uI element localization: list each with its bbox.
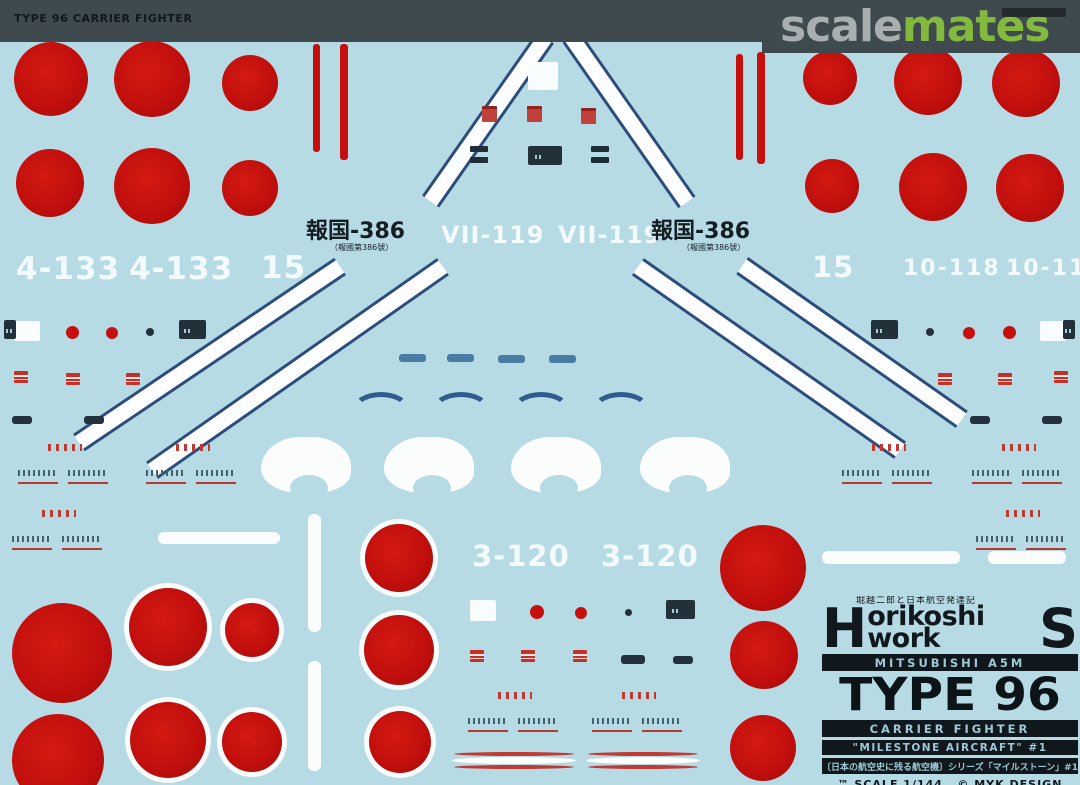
red-stripe-decal (757, 52, 765, 164)
tiny-red-marks (872, 444, 906, 451)
stencil-bar (591, 146, 609, 152)
white-block-decal (528, 62, 558, 90)
tail-code-label: 10-118 (1006, 256, 1080, 281)
stencil-pair-decal (591, 146, 609, 166)
stencil-pair-decal (470, 146, 488, 166)
hokoku-marking: 報国-386 (651, 213, 750, 245)
red-line (454, 765, 574, 769)
hokoku-marking-sub: （報國第386號） (330, 242, 393, 253)
dark-dot-decal (146, 328, 154, 336)
red-square-decal (527, 106, 542, 122)
logo-text-scale: scale (780, 1, 902, 52)
tail-code-label: 3-120 (472, 539, 570, 573)
striped-patch-decal (573, 650, 587, 662)
tiny-red-marks (48, 444, 82, 451)
red-line (454, 752, 574, 756)
subtitle-milestone-aircraft: "MILESTONE AIRCRAFT" #1 (822, 740, 1078, 755)
tiny-red-marks (1006, 510, 1040, 517)
stencil-bar-decal (621, 655, 645, 664)
subtitle-series-jp: 〔日本の航空史に残る航空機〕シリーズ「マイルストーン」#1 (822, 758, 1078, 774)
dashed-walkline-decal (447, 354, 474, 362)
tail-code-label: 4-133 (16, 251, 120, 287)
cowl-arc-decal (592, 392, 650, 428)
stencil-text-cluster (146, 444, 238, 486)
hinomaru-roundel (803, 51, 857, 105)
striped-patch-decal (521, 650, 535, 662)
stencil-underline-group (1022, 468, 1062, 484)
stencil-bar-decal (12, 416, 32, 424)
dashed-walkline-decal (399, 354, 426, 362)
stencil-underline-group (892, 468, 932, 484)
hinomaru-roundel (730, 621, 798, 689)
stencil-text-cluster (592, 692, 684, 734)
red-dot-decal (66, 326, 79, 339)
image-title: TYPE 96 CARRIER FIGHTER (14, 12, 193, 25)
hinomaru-roundel (730, 715, 796, 781)
spat-notch (540, 475, 578, 501)
hinomaru-roundel (899, 153, 967, 221)
hinomaru-roundel (114, 41, 190, 117)
white-strip-decal (308, 661, 321, 771)
stencil-bar-decal (673, 656, 693, 664)
dark-dot-decal (926, 328, 934, 336)
stencil-block-decal (871, 320, 898, 339)
cowl-arc-decal (512, 392, 570, 428)
tail-code-label: 15 (812, 250, 854, 284)
hinomaru-roundel (12, 714, 104, 785)
striped-patch-decal (66, 373, 80, 385)
curved-stripe-decal (452, 752, 576, 769)
white-strip-decal (158, 532, 280, 544)
striped-patch-decal (998, 373, 1012, 385)
stencil-underline-group (518, 716, 558, 732)
red-dot-decal (106, 327, 118, 339)
tiny-red-marks (42, 510, 76, 517)
stencil-block-decal (1063, 320, 1075, 339)
red-line (588, 752, 698, 756)
red-square-decal (581, 108, 596, 124)
white-line (452, 757, 576, 764)
white-block-decal (470, 600, 496, 621)
tail-code-label: 15 (261, 250, 306, 286)
cowl-arc-decal (352, 392, 410, 428)
red-stripe-decal (736, 54, 743, 160)
white-strip-decal (822, 551, 960, 564)
stencil-text-cluster (12, 510, 104, 552)
wheel-spat-decal (511, 437, 601, 493)
hinomaru-roundel (996, 154, 1064, 222)
logo-tagline-smudge (1002, 8, 1066, 17)
stencil-underline-group (68, 468, 108, 484)
red-dot-decal (1003, 326, 1016, 339)
white-strip-decal (988, 551, 1066, 564)
decal-sheet-image: 4-133 4-133 15 VII-119 VII-119 15 10-118… (0, 0, 1080, 785)
tail-code-label: VII-119 (441, 221, 545, 249)
stencil-underline-group (146, 468, 186, 484)
red-dot-decal (575, 607, 587, 619)
stencil-text-cluster (842, 444, 934, 486)
hinomaru-roundel (805, 159, 859, 213)
stencil-block-decal (528, 146, 562, 165)
tail-code-label: VII-119 (558, 221, 662, 249)
striped-patch-decal (938, 373, 952, 385)
tiny-red-marks (498, 692, 532, 699)
hinomaru-roundel (894, 47, 962, 115)
stencil-underline-group (642, 716, 682, 732)
stencil-bar-decal (970, 416, 990, 424)
scalemates-logo: scalemates (762, 0, 1080, 53)
brand-initial-h: H (822, 607, 867, 651)
white-strip-decal (308, 514, 321, 632)
brand-mid-text: orikoshi work (867, 606, 1039, 651)
hinomaru-roundel (225, 603, 279, 657)
white-line (586, 757, 700, 764)
stencil-underline-group (18, 468, 58, 484)
stencil-bar (470, 157, 488, 163)
striped-patch-decal (14, 371, 28, 383)
brand-info-box: 堀越二郎と日本航空発達記 Horikoshi workS MITSUBISHI … (822, 596, 1078, 785)
stencil-block-decal (179, 320, 206, 339)
stencil-block-decal (4, 320, 16, 339)
stencil-underline-group (592, 716, 632, 732)
stencil-block-decal (666, 600, 695, 619)
hinomaru-roundel (222, 55, 278, 111)
red-stripe-decal (340, 44, 348, 160)
tiny-red-marks (622, 692, 656, 699)
stencil-bar (591, 157, 609, 163)
stencil-text-cluster (972, 444, 1064, 486)
hinomaru-roundel (222, 160, 278, 216)
hinomaru-roundel (369, 711, 431, 773)
stencil-bar-decal (84, 416, 104, 424)
title-type-96: TYPE 96 (812, 672, 1080, 717)
spat-notch (290, 475, 328, 501)
hinomaru-roundel (16, 149, 84, 217)
striped-patch-decal (126, 373, 140, 385)
scale-copyright-line: ™ SCALE 1/144 © MYK DESIGN (822, 778, 1078, 785)
subtitle-carrier-fighter: CARRIER FIGHTER (822, 720, 1078, 737)
stencil-bar-decal (1042, 416, 1062, 424)
stencil-underline-group (12, 534, 52, 550)
hinomaru-roundel (992, 49, 1060, 117)
red-dot-decal (963, 327, 975, 339)
curved-stripe-decal (586, 752, 700, 769)
brand-title: Horikoshi workS (822, 606, 1078, 651)
stencil-bar (470, 146, 488, 152)
red-line (588, 765, 698, 769)
stencil-underline-group (468, 716, 508, 732)
wheel-spat-decal (640, 437, 730, 493)
striped-patch-decal (1054, 371, 1068, 383)
dark-dot-decal (625, 609, 632, 616)
hinomaru-roundel (12, 603, 112, 703)
stencil-underline-group (842, 468, 882, 484)
stencil-text-cluster (468, 692, 560, 734)
dashed-walkline-decal (498, 355, 525, 363)
brand-final-s: S (1039, 607, 1078, 651)
stencil-underline-group (972, 468, 1012, 484)
tiny-red-marks (176, 444, 210, 451)
hokoku-marking-sub: （報國第386號） (682, 242, 745, 253)
stencil-text-cluster (976, 510, 1068, 552)
tail-code-label: 4-133 (129, 251, 233, 287)
hinomaru-roundel (365, 524, 433, 592)
hinomaru-roundel (364, 615, 434, 685)
striped-patch-decal (470, 650, 484, 662)
tail-code-label: 3-120 (601, 539, 699, 573)
white-block-decal (14, 321, 40, 341)
hinomaru-roundel (114, 148, 190, 224)
red-dot-decal (530, 605, 544, 619)
wheel-spat-decal (384, 437, 474, 493)
wheel-spat-decal (261, 437, 351, 493)
cowl-arc-decal (432, 392, 490, 428)
stencil-text-cluster (18, 444, 110, 486)
hinomaru-roundel (129, 588, 207, 666)
hinomaru-roundel (130, 702, 206, 778)
spat-notch (413, 475, 451, 501)
red-square-decal (482, 106, 497, 122)
spat-notch (669, 475, 707, 501)
hinomaru-roundel (222, 712, 282, 772)
hinomaru-roundel (14, 42, 88, 116)
tail-code-label: 10-118 (903, 256, 1001, 281)
red-stripe-decal (313, 44, 320, 152)
stencil-underline-group (62, 534, 102, 550)
dashed-walkline-decal (549, 355, 576, 363)
hinomaru-roundel (720, 525, 806, 611)
stencil-underline-group (1026, 534, 1066, 550)
stencil-underline-group (976, 534, 1016, 550)
stencil-underline-group (196, 468, 236, 484)
tiny-red-marks (1002, 444, 1036, 451)
hokoku-marking: 報国-386 (306, 213, 405, 245)
